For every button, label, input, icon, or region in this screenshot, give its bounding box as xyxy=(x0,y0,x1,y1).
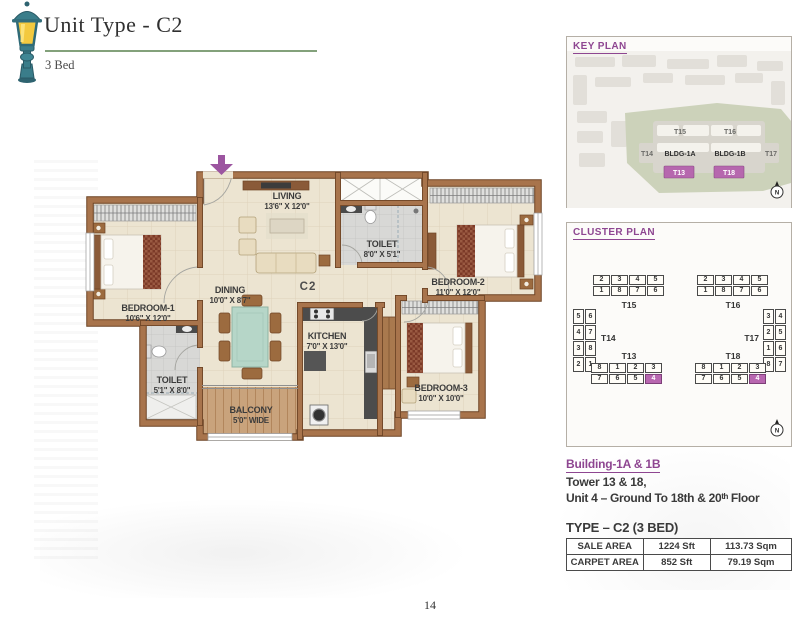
building-name: Building-1A & 1B xyxy=(566,457,660,473)
tower-label-t17: T17 xyxy=(733,333,759,343)
cluster-unit: 3 xyxy=(715,275,732,285)
cluster-right-bottom-row1: 8123 xyxy=(695,363,766,373)
cluster-right-bottom-row2: 7654 xyxy=(695,374,766,384)
title-underline xyxy=(45,50,317,52)
room-label-toilet-bottom: TOILET5'1" X 8'0" xyxy=(154,375,191,395)
cluster-unit: 3 xyxy=(763,309,774,324)
cluster-unit: 8 xyxy=(591,363,608,373)
cluster-unit: 4 xyxy=(573,325,584,340)
cluster-unit: 6 xyxy=(751,286,768,296)
cluster-unit: 2 xyxy=(573,357,584,372)
cluster-plan-title: CLUSTER PLAN xyxy=(573,227,655,240)
svg-text:BLDG-1B: BLDG-1B xyxy=(714,151,745,158)
key-plan-title: KEY PLAN xyxy=(573,41,627,54)
lamp-icon xyxy=(8,0,46,84)
cluster-right-top-row2: 1876 xyxy=(697,286,768,296)
cluster-unit: 6 xyxy=(713,374,730,384)
cluster-unit: 6 xyxy=(775,341,786,356)
area-table-cell: CARPET AREA xyxy=(567,555,644,571)
tower-label-t16: T16 xyxy=(697,300,769,310)
svg-text:T13: T13 xyxy=(673,170,685,177)
svg-text:BLDG-1A: BLDG-1A xyxy=(664,151,695,158)
cluster-unit: 7 xyxy=(733,286,750,296)
cluster-unit: 6 xyxy=(609,374,626,384)
cluster-unit: 2 xyxy=(627,363,644,373)
cluster-left-top-row2: 1876 xyxy=(593,286,664,296)
cluster-unit: 7 xyxy=(591,374,608,384)
room-label-balcony: BALCONY5'0" WIDE xyxy=(229,405,272,425)
cluster-unit: 4 xyxy=(775,309,786,324)
cluster-unit: 5 xyxy=(573,309,584,324)
room-label-bedroom2: BEDROOM-211'0" X 12'0" xyxy=(431,277,484,297)
svg-text:T14: T14 xyxy=(641,151,653,158)
svg-text:T16: T16 xyxy=(724,129,736,136)
room-label-toilet-top: TOILET8'0" X 5'1" xyxy=(364,239,401,259)
page-number: 14 xyxy=(0,598,800,613)
cluster-unit: 3 xyxy=(573,341,584,356)
brochure-page: Unit Type - C2 3 Bed xyxy=(0,0,800,619)
area-table-cell: SALE AREA xyxy=(567,539,644,555)
cluster-unit: 8 xyxy=(715,286,732,296)
cluster-unit: 5 xyxy=(751,275,768,285)
area-table-cell: 1224 Sft xyxy=(643,539,711,555)
cluster-unit: 1 xyxy=(593,286,610,296)
cluster-unit: 1 xyxy=(713,363,730,373)
cluster-unit: 6 xyxy=(585,309,596,324)
cluster-unit: 5 xyxy=(731,374,748,384)
cluster-unit: 5 xyxy=(775,325,786,340)
cluster-unit: 1 xyxy=(609,363,626,373)
area-table-cell: 79.19 Sqm xyxy=(711,555,792,571)
area-table-cell: 113.73 Sqm xyxy=(711,539,792,555)
background-watermark xyxy=(40,498,470,598)
cluster-left-top-row1: 2345 xyxy=(593,275,664,285)
cluster-unit: 7 xyxy=(695,374,712,384)
compass-icon: N xyxy=(769,419,785,437)
tower-label-t13: T13 xyxy=(593,351,665,361)
cluster-unit: 4 xyxy=(645,374,662,384)
cluster-unit: 3 xyxy=(749,363,766,373)
cluster-unit: 2 xyxy=(593,275,610,285)
cluster-unit: 7 xyxy=(629,286,646,296)
cluster-plan-panel: CLUSTER PLAN 2345 1876 T15 5432 6781 T14… xyxy=(566,222,792,447)
type-title: TYPE – C2 (3 BED) xyxy=(566,520,678,535)
tower-info: Tower 13 & 18, xyxy=(566,475,646,489)
cluster-left-side-col1: 5432 xyxy=(573,309,584,372)
key-plan-panel: KEY PLAN xyxy=(566,36,792,208)
cluster-unit: 2 xyxy=(731,363,748,373)
table-row: CARPET AREA 852 Sft 79.19 Sqm xyxy=(567,555,792,571)
svg-text:T18: T18 xyxy=(723,170,735,177)
cluster-left-bottom-row2: 7654 xyxy=(591,374,662,384)
tower-label-t18: T18 xyxy=(697,351,769,361)
cluster-unit: 4 xyxy=(733,275,750,285)
key-plan-map: T15 T16 T14 BLDG-1A BLDG-1B T17 T13 T18 … xyxy=(567,51,791,208)
cluster-right-top-row1: 2345 xyxy=(697,275,768,285)
cluster-left-bottom-row1: 8123 xyxy=(591,363,662,373)
page-subtitle: 3 Bed xyxy=(45,58,75,73)
unit-type-tag: C2 xyxy=(300,281,317,293)
cluster-unit: 3 xyxy=(645,363,662,373)
cluster-unit: 5 xyxy=(627,374,644,384)
svg-text:N: N xyxy=(775,191,779,197)
floor-plan: LIVING13'6" X 12'0" TOILET8'0" X 5'1" BE… xyxy=(80,155,560,465)
cluster-unit: 4 xyxy=(749,374,766,384)
unit-floor-info: Unit 4 – Ground To 18th & 20ᵗʰ Floor xyxy=(566,491,759,505)
cluster-unit: 8 xyxy=(695,363,712,373)
cluster-unit: 6 xyxy=(647,286,664,296)
cluster-unit: 2 xyxy=(697,275,714,285)
page-title: Unit Type - C2 xyxy=(44,12,183,38)
cluster-unit: 3 xyxy=(611,275,628,285)
cluster-unit: 4 xyxy=(629,275,646,285)
svg-text:T17: T17 xyxy=(765,151,777,158)
table-row: SALE AREA 1224 Sft 113.73 Sqm xyxy=(567,539,792,555)
area-table: SALE AREA 1224 Sft 113.73 Sqm CARPET ARE… xyxy=(566,538,792,571)
tower-label-t14: T14 xyxy=(601,333,625,343)
cluster-right-side-col2: 4567 xyxy=(775,309,786,372)
cluster-unit: 5 xyxy=(647,275,664,285)
tower-label-t15: T15 xyxy=(593,300,665,310)
cluster-unit: 2 xyxy=(763,325,774,340)
cluster-unit: 1 xyxy=(697,286,714,296)
svg-text:T15: T15 xyxy=(674,129,686,136)
room-label-dining: DINING10'0" X 8'7" xyxy=(209,285,250,305)
area-table-cell: 852 Sft xyxy=(643,555,711,571)
room-label-bedroom1: BEDROOM-110'6" X 12'0" xyxy=(121,303,174,323)
room-label-living: LIVING13'6" X 12'0" xyxy=(264,191,309,211)
room-label-bedroom3: BEDROOM-310'0" X 10'0" xyxy=(414,383,467,403)
room-label-kitchen: KITCHEN7'0" X 13'0" xyxy=(306,331,347,351)
cluster-unit: 8 xyxy=(611,286,628,296)
svg-text:N: N xyxy=(775,429,779,435)
cluster-unit: 7 xyxy=(775,357,786,372)
cluster-unit: 7 xyxy=(585,325,596,340)
